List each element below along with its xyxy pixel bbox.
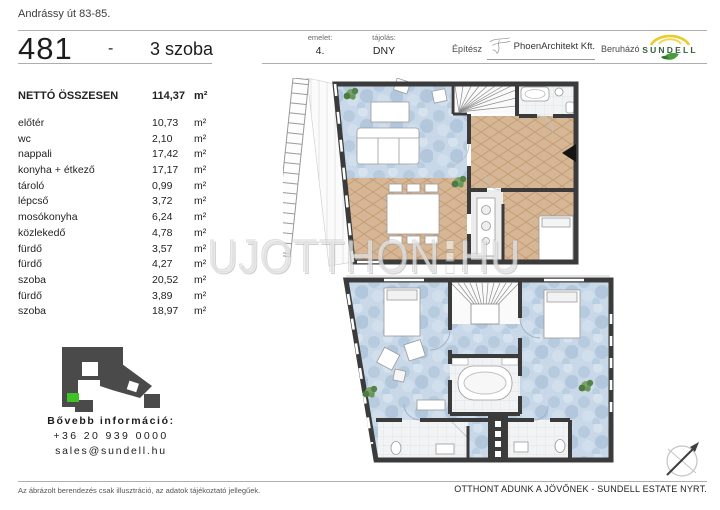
- room-name: szoba: [18, 273, 152, 289]
- room-name: tároló: [18, 179, 152, 195]
- room-name: lépcső: [18, 194, 152, 210]
- room-name: előtér: [18, 116, 152, 132]
- room-area: 10,73: [152, 116, 194, 132]
- table-row: lépcső3,72m²: [18, 194, 242, 210]
- unit-rule-left: [18, 63, 212, 64]
- table-row: konyha + étkező17,17m²: [18, 163, 242, 179]
- room-area: 20,52: [152, 273, 194, 289]
- room-name: közlekedő: [18, 226, 152, 242]
- table-row: fürdő3,89m²: [18, 289, 242, 305]
- orientation-meta: tájolás: DNY: [356, 33, 412, 58]
- floor-label: emelet:: [292, 33, 348, 42]
- area-total-row: NETTÓ ÖSSZESEN 114,37 m²: [18, 90, 242, 102]
- sink: [514, 442, 528, 452]
- room-name: szoba: [18, 304, 152, 320]
- sink: [502, 358, 518, 365]
- sundell-logo-icon: SUNDELL: [638, 32, 702, 64]
- total-unit: m²: [194, 90, 242, 102]
- table-row: nappali17,42m²: [18, 147, 242, 163]
- unit-number: 481: [18, 31, 73, 67]
- side-table: [393, 369, 406, 382]
- floor-value: 4.: [292, 44, 348, 58]
- floorplan-level-1: [283, 78, 581, 270]
- area-unit: m²: [194, 226, 242, 242]
- floorplan-datasheet: Andrássy út 83-85. 481 - 3 szoba emelet:…: [0, 0, 720, 510]
- room-area: 2,10: [152, 132, 194, 148]
- sink: [555, 88, 563, 96]
- terrace-railing: [283, 78, 309, 257]
- room-area: 3,89: [152, 289, 194, 305]
- table-row: tároló0,99m²: [18, 179, 242, 195]
- unit-separator: -: [108, 40, 113, 58]
- address: Andrássy út 83-85.: [18, 8, 110, 20]
- area-unit: m²: [194, 289, 242, 305]
- table-row: szoba20,52m²: [18, 273, 242, 289]
- architect-logo-block: PhoenArchitekt Kft.: [487, 33, 595, 60]
- toilet: [555, 440, 565, 453]
- architect-name: PhoenArchitekt Kft.: [514, 41, 595, 52]
- room-area: 0,99: [152, 179, 194, 195]
- desk: [417, 400, 445, 410]
- room-name: mosókonyha: [18, 210, 152, 226]
- orientation-value: DNY: [356, 44, 412, 58]
- header-top-rule: [18, 30, 707, 31]
- room-area: 4,27: [152, 257, 194, 273]
- room-area: 4,78: [152, 226, 194, 242]
- area-unit: m²: [194, 273, 242, 289]
- total-label: NETTÓ ÖSSZESEN: [18, 90, 152, 102]
- sink: [436, 444, 454, 454]
- area-unit: m²: [194, 210, 242, 226]
- table-row: mosókonyha6,24m²: [18, 210, 242, 226]
- room-name: konyha + étkező: [18, 163, 152, 179]
- floor-meta: emelet: 4.: [292, 33, 348, 58]
- table-row: előtér10,73m²: [18, 116, 242, 132]
- disclaimer-text: Az ábrázolt berendezés csak illusztráció…: [18, 486, 260, 495]
- building-footprint-icon: [52, 342, 170, 416]
- area-unit: m²: [194, 116, 242, 132]
- area-unit: m²: [194, 304, 242, 320]
- room-name: nappali: [18, 147, 152, 163]
- toilet: [391, 442, 401, 455]
- table-row: szoba18,97m²: [18, 304, 242, 320]
- table-row: wc2,10m²: [18, 132, 242, 148]
- stair-landing: [471, 304, 499, 324]
- room-name: wc: [18, 132, 152, 148]
- table-row: fürdő4,27m²: [18, 257, 242, 273]
- area-unit: m²: [194, 242, 242, 258]
- room-name: fürdő: [18, 257, 152, 273]
- phoenix-logo-icon: [487, 34, 512, 58]
- compass-north-icon: [658, 434, 706, 480]
- bathroom-floor: [378, 420, 468, 458]
- area-table-rows: előtér10,73m²wc2,10m²nappali17,42m²konyh…: [18, 116, 242, 320]
- architect-label: Építész: [452, 44, 482, 54]
- email-address: sales@sundell.hu: [28, 444, 194, 459]
- room-name: fürdő: [18, 242, 152, 258]
- room-name: fürdő: [18, 289, 152, 305]
- room-area: 6,24: [152, 210, 194, 226]
- more-info-label: Bővebb információ:: [28, 414, 194, 429]
- contact-block: Bővebb információ: +36 20 939 0000 sales…: [28, 414, 194, 459]
- table-row: fürdő3,57m²: [18, 242, 242, 258]
- area-unit: m²: [194, 132, 242, 148]
- room-count-label: 3 szoba: [150, 39, 213, 60]
- area-unit: m²: [194, 179, 242, 195]
- room-area: 17,42: [152, 147, 194, 163]
- room-area: 18,97: [152, 304, 194, 320]
- orientation-label: tájolás:: [356, 33, 412, 42]
- area-unit: m²: [194, 194, 242, 210]
- dining-table: [387, 194, 439, 234]
- area-unit: m²: [194, 163, 242, 179]
- sofa: [357, 128, 419, 164]
- developer-label: Beruházó: [601, 44, 640, 54]
- area-unit: m²: [194, 147, 242, 163]
- unit-location-marker: [67, 393, 79, 402]
- room-area: 3,57: [152, 242, 194, 258]
- sink: [452, 358, 468, 365]
- company-slogan: OTTHONT ADUNK A JÖVŐNEK - SUNDELL ESTATE…: [454, 484, 707, 494]
- footer-rule: [18, 481, 707, 482]
- bathtub: [464, 372, 506, 394]
- toilet: [566, 102, 574, 113]
- total-value: 114,37: [152, 90, 194, 102]
- room-area: 17,17: [152, 163, 194, 179]
- coffee-table: [371, 102, 409, 122]
- room-area: 3,72: [152, 194, 194, 210]
- phone-number: +36 20 939 0000: [28, 429, 194, 444]
- armchair: [432, 89, 447, 103]
- area-unit: m²: [194, 257, 242, 273]
- hall-floor: [471, 116, 576, 188]
- floorplan-level-2: [338, 274, 620, 468]
- table-row: közlekedő4,78m²: [18, 226, 242, 242]
